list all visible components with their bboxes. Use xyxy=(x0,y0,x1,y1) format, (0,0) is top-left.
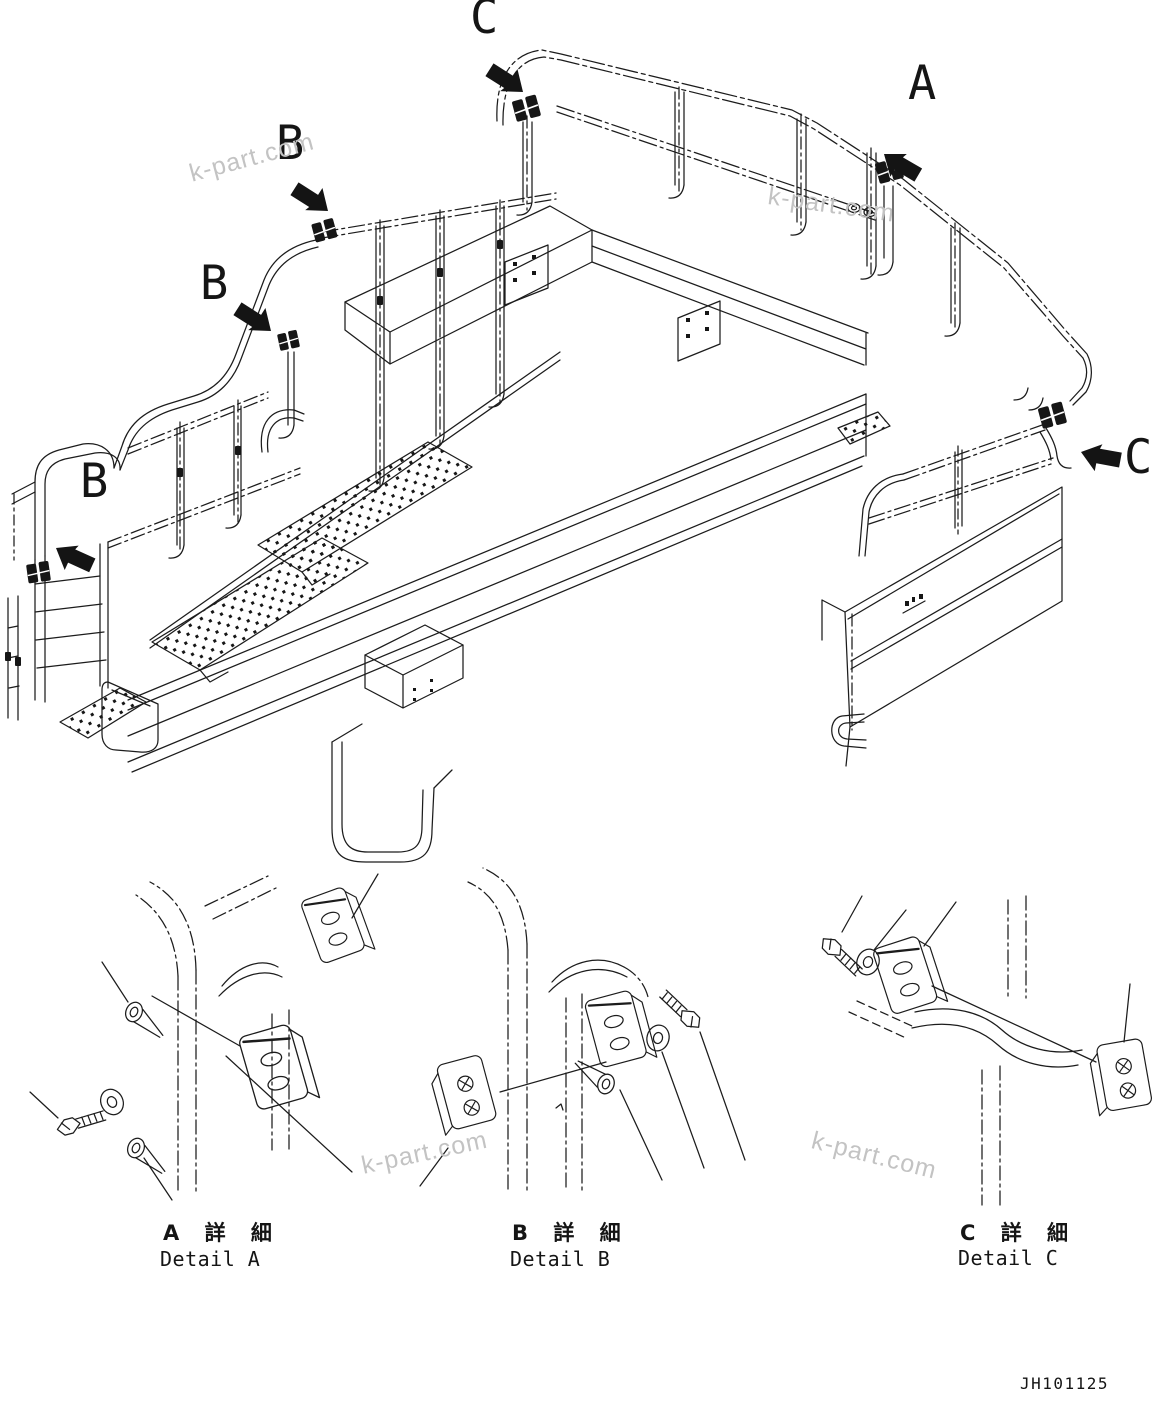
drawing-number: JH101125 xyxy=(1020,1374,1109,1393)
detail-c-caption-en: Detail C xyxy=(958,1247,1058,1269)
detail-a-caption-en: Detail A xyxy=(160,1248,260,1270)
arrow-c-right xyxy=(1077,439,1125,478)
detail-c-caption-jp: C 詳 細 xyxy=(960,1222,1077,1245)
callout-label-c-right: C xyxy=(1124,434,1152,481)
parts-diagram-page: C A B B B C A 詳 細 Detail A B 詳 細 Detail … xyxy=(0,0,1163,1421)
arrow-c-top xyxy=(483,55,532,103)
arrow-b-upper xyxy=(288,174,337,222)
detail-a-caption-jp: A 詳 細 xyxy=(163,1222,281,1245)
right-panel-section xyxy=(822,388,1071,766)
detail-a-view xyxy=(30,874,378,1200)
top-handrail xyxy=(497,50,1092,405)
callout-label-b-mid: B xyxy=(200,260,228,307)
callout-label-c-top: C xyxy=(470,0,498,41)
detail-b-caption-jp: B 詳 細 xyxy=(512,1222,630,1245)
detail-b-caption-en: Detail B xyxy=(510,1248,610,1270)
isometric-line-drawing xyxy=(0,0,1163,1421)
callout-label-a: A xyxy=(908,60,936,107)
callout-label-b-lower: B xyxy=(80,458,108,505)
arrow-b-lower xyxy=(49,536,99,581)
arrow-b-mid xyxy=(231,294,280,342)
